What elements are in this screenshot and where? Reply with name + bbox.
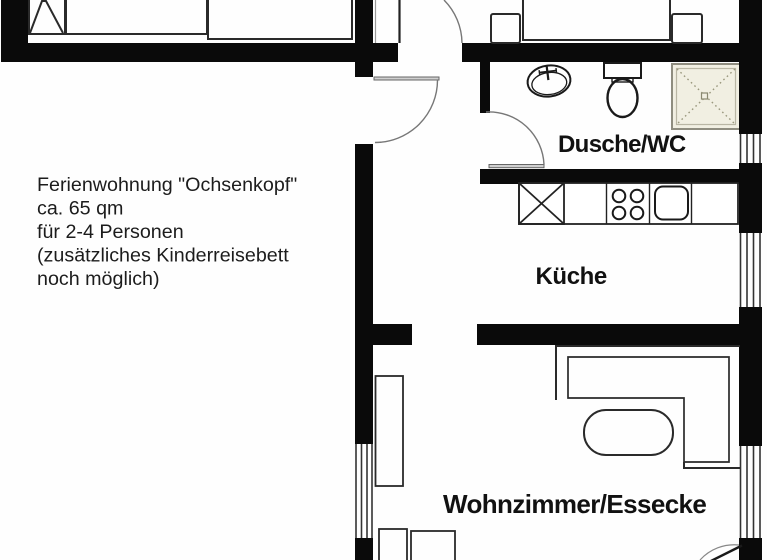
svg-text:(zusätzliches Kinderreisebett: (zusätzliches Kinderreisebett <box>37 245 289 267</box>
svg-text:Ferienwohnung "Ochsenkopf": Ferienwohnung "Ochsenkopf" <box>37 174 297 196</box>
svg-text:Küche: Küche <box>536 263 607 290</box>
svg-text:noch möglich): noch möglich) <box>37 268 160 290</box>
svg-text:für 2-4 Personen: für 2-4 Personen <box>37 221 184 243</box>
svg-text:ca. 65 qm: ca. 65 qm <box>37 198 123 220</box>
svg-text:Dusche/WC: Dusche/WC <box>558 131 686 158</box>
svg-text:Wohnzimmer/Essecke: Wohnzimmer/Essecke <box>443 489 706 519</box>
